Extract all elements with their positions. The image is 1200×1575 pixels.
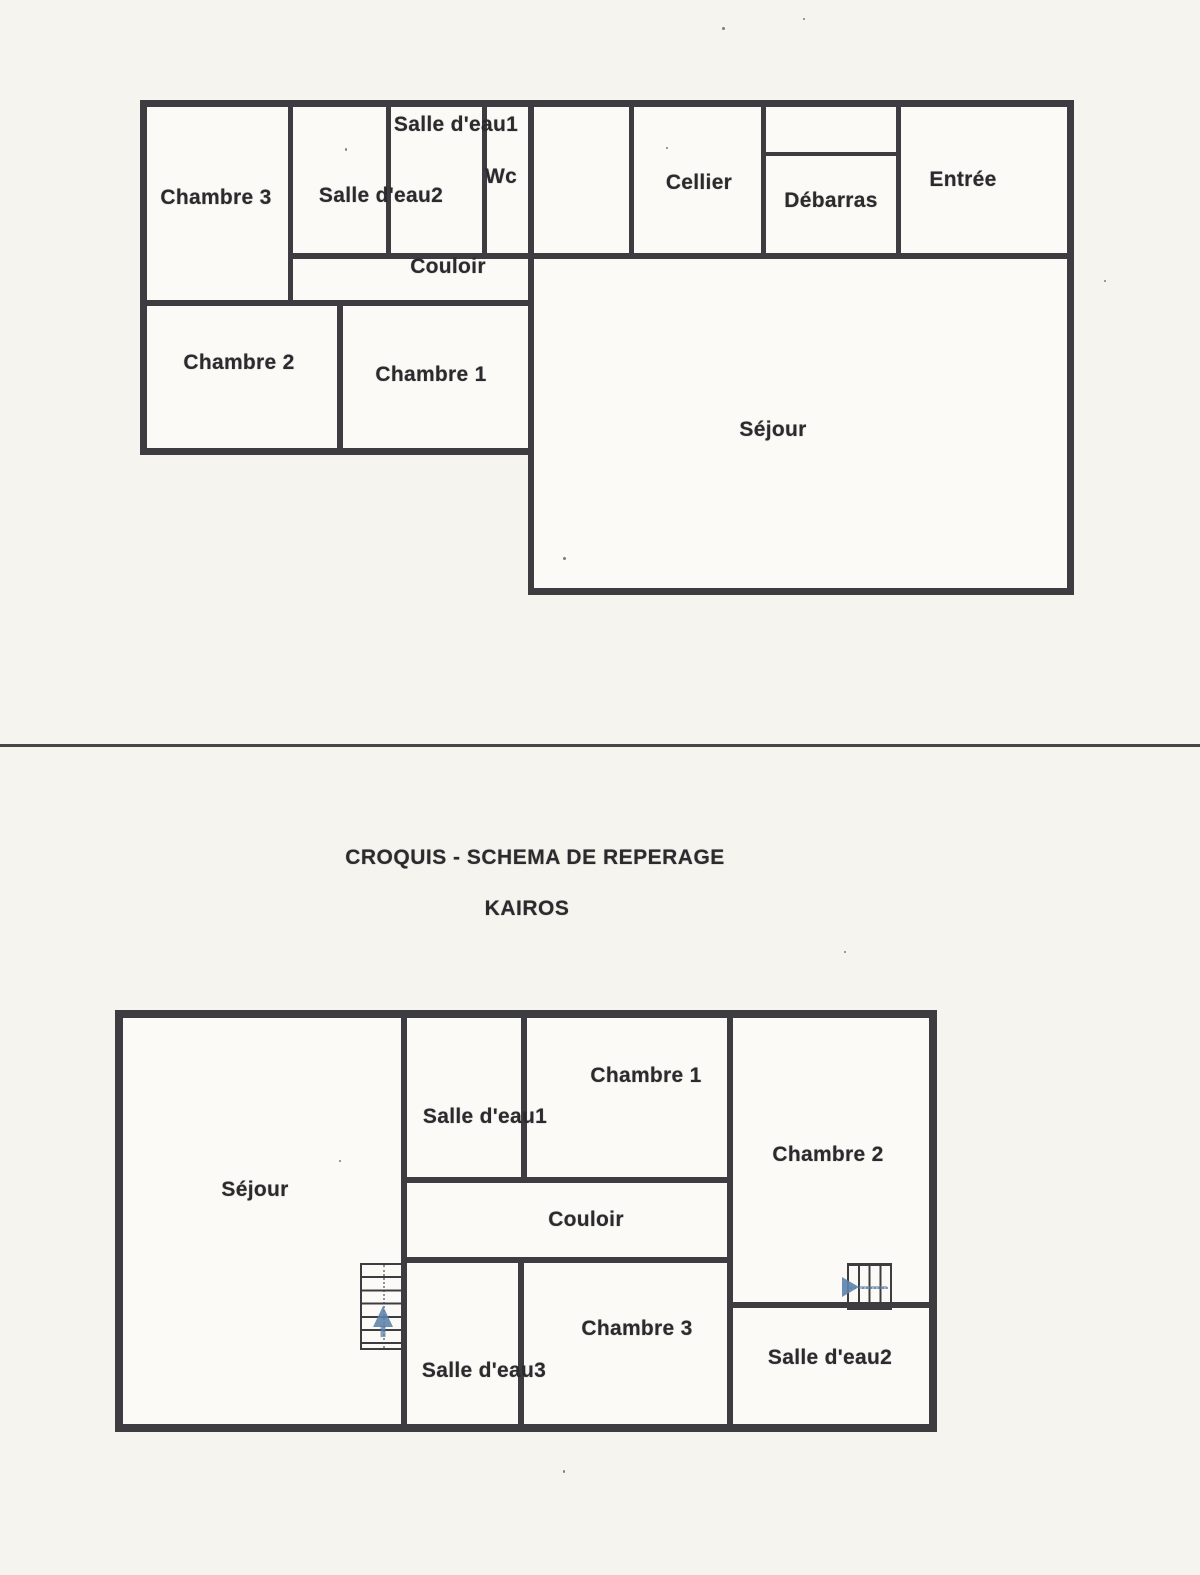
- staircase-right-icon: [847, 1263, 892, 1310]
- wall-segment: [405, 1257, 730, 1263]
- wall-segment: [1067, 100, 1074, 595]
- scan-speck: [563, 557, 566, 560]
- room-label-cellier: Cellier: [666, 171, 732, 195]
- scan-speck: [844, 951, 846, 953]
- wall-segment: [288, 103, 293, 306]
- room-label-p2-couloir: Couloir: [548, 1208, 624, 1232]
- wall-segment: [518, 1259, 524, 1426]
- room-label-p2-salle-deau2: Salle d'eau2: [768, 1346, 892, 1370]
- room-label-sejour: Séjour: [739, 418, 806, 442]
- wall-segment: [528, 100, 534, 595]
- wall-segment: [629, 105, 634, 255]
- room-label-debarras: Débarras: [784, 189, 877, 213]
- wall-segment: [731, 1302, 931, 1308]
- right-arrow-tail: [859, 1286, 887, 1289]
- scan-speck: [345, 148, 347, 151]
- room-label-p2-chambre-1: Chambre 1: [590, 1064, 701, 1088]
- room-label-salle-deau2: Salle d'eau2: [319, 184, 443, 208]
- room-label-salle-deau1: Salle d'eau1: [394, 113, 518, 137]
- document-subtitle: KAIROS: [485, 897, 570, 921]
- up-arrow-icon: [373, 1306, 393, 1327]
- room-label-p2-salle-deau3: Salle d'eau3: [422, 1359, 546, 1383]
- wall-segment: [727, 1016, 733, 1426]
- wall-segment: [386, 105, 391, 255]
- right-arrow-icon: [842, 1277, 859, 1297]
- wall-segment: [929, 1010, 937, 1432]
- scan-speck: [803, 18, 805, 20]
- wall-segment: [140, 100, 147, 455]
- room-label-wc: Wc: [485, 165, 517, 189]
- room-label-p2-salle-deau1: Salle d'eau1: [423, 1105, 547, 1129]
- staircase-up-icon: [360, 1263, 404, 1350]
- room-label-chambre-1: Chambre 1: [375, 363, 486, 387]
- up-arrow-tail: [381, 1325, 386, 1337]
- room-label-entree: Entrée: [929, 168, 996, 192]
- wall-segment: [288, 253, 1074, 259]
- room-label-chambre-3: Chambre 3: [160, 186, 271, 210]
- scan-speck: [339, 1160, 341, 1162]
- wall-segment: [521, 1016, 527, 1182]
- wall-segment: [405, 1177, 730, 1183]
- wall-segment: [140, 100, 1074, 107]
- room-label-chambre-2: Chambre 2: [183, 351, 294, 375]
- scan-speck: [666, 147, 668, 149]
- document-title: CROQUIS - SCHEMA DE REPERAGE: [345, 846, 725, 870]
- room-label-couloir: Couloir: [410, 255, 486, 279]
- wall-segment: [763, 152, 898, 156]
- wall-segment: [896, 105, 901, 255]
- scan-speck: [1104, 280, 1106, 282]
- scan-speck: [563, 1470, 565, 1473]
- scan-speck: [722, 27, 725, 30]
- section-divider-line: [0, 744, 1200, 747]
- room-label-p2-sejour: Séjour: [221, 1178, 288, 1202]
- room-label-p2-chambre-3: Chambre 3: [581, 1317, 692, 1341]
- room-label-p2-chambre-2: Chambre 2: [772, 1143, 883, 1167]
- scanned-floor-plan-document: Chambre 3 Salle d'eau2 Salle d'eau1 Wc C…: [0, 0, 1200, 1575]
- wall-segment: [528, 588, 1074, 595]
- wall-segment: [115, 1424, 937, 1432]
- wall-segment: [401, 1016, 407, 1426]
- wall-segment: [337, 304, 343, 450]
- wall-segment: [761, 105, 766, 255]
- wall-segment: [115, 1010, 123, 1432]
